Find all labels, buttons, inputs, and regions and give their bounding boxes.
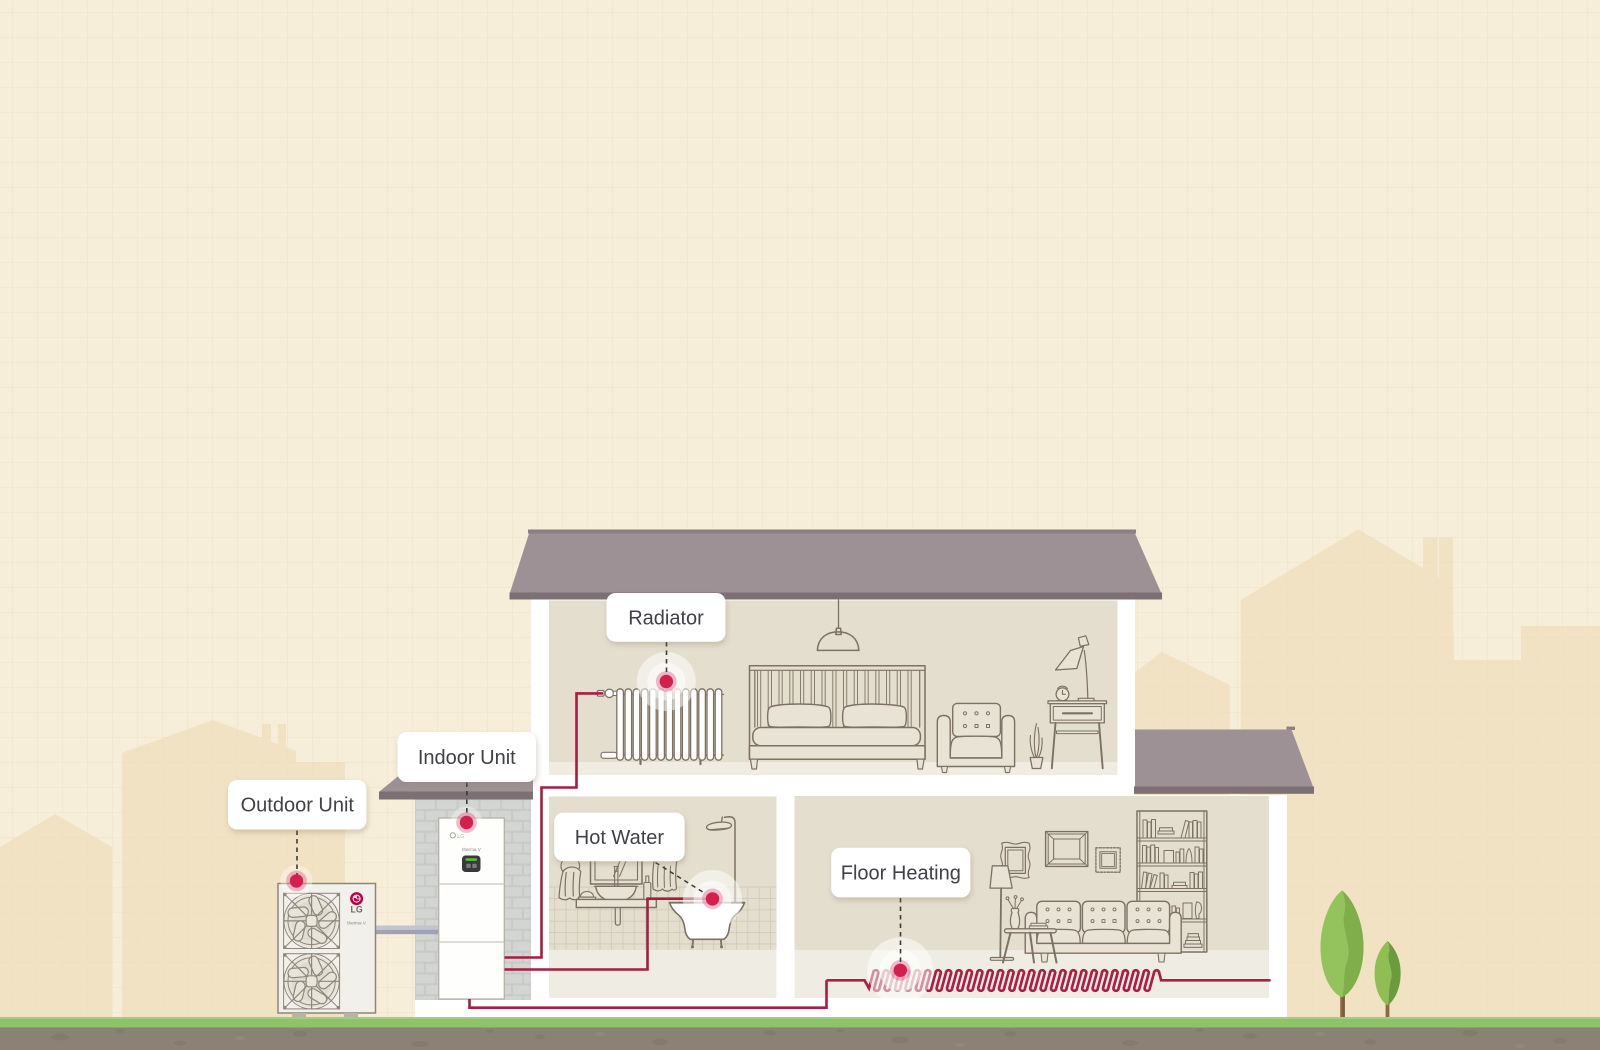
svg-text:Outdoor Unit: Outdoor Unit (241, 795, 355, 817)
svg-text:Hot Water: Hot Water (575, 827, 665, 849)
svg-text:therma V: therma V (347, 921, 367, 926)
svg-text:Floor Heating: Floor Heating (841, 863, 961, 885)
svg-text:therma V: therma V (462, 847, 482, 852)
svg-text:Indoor Unit: Indoor Unit (418, 747, 516, 769)
svg-text:Radiator: Radiator (628, 607, 704, 629)
svg-text:LG: LG (350, 905, 362, 915)
